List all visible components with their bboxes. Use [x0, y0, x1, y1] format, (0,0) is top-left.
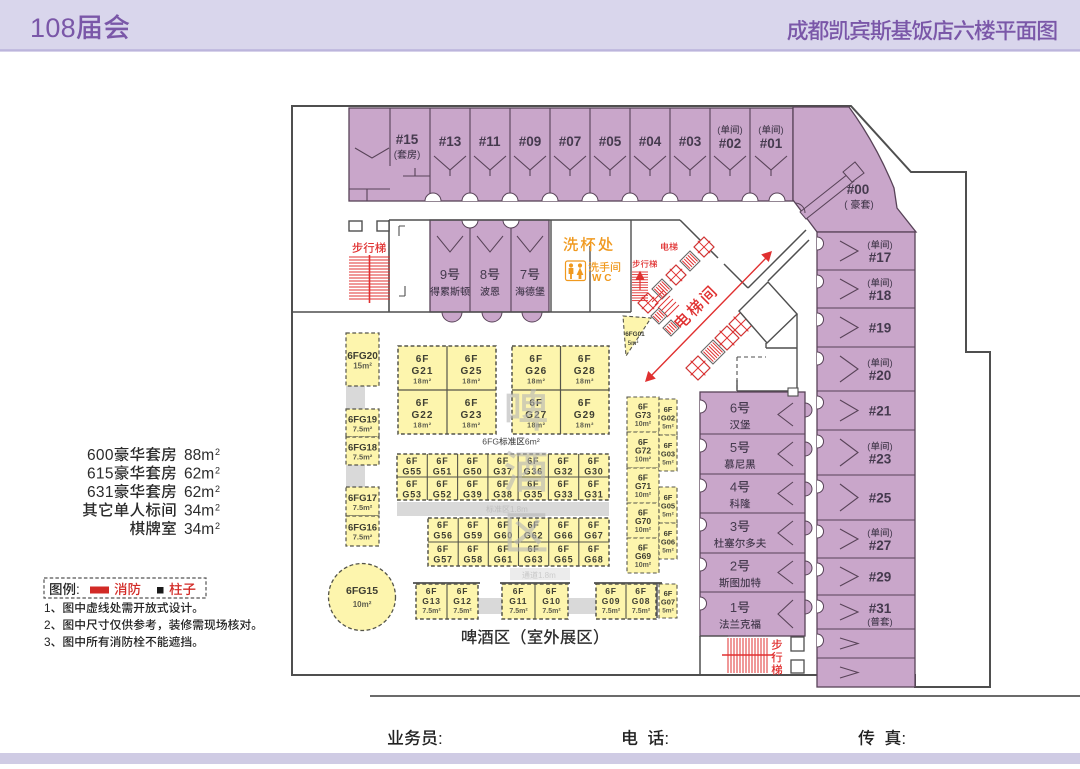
svg-text:6F: 6F — [436, 479, 448, 489]
svg-text:1.8m: 1.8m — [538, 571, 556, 580]
svg-text:4: 4 — [730, 480, 737, 495]
svg-text:2: 2 — [215, 484, 220, 494]
svg-text:G69: G69 — [635, 551, 651, 561]
svg-text:G31: G31 — [584, 490, 603, 500]
svg-text:6F: 6F — [406, 456, 418, 466]
svg-text:G32: G32 — [554, 467, 573, 477]
svg-text:G73: G73 — [635, 410, 651, 420]
svg-text:G02: G02 — [661, 414, 675, 423]
svg-text:#27: #27 — [869, 538, 892, 553]
svg-text:18m²: 18m² — [576, 379, 595, 386]
svg-text:2: 2 — [215, 466, 220, 476]
svg-text:5m²: 5m² — [662, 512, 674, 519]
svg-text:3: 3 — [730, 519, 737, 534]
svg-text:#23: #23 — [869, 452, 892, 467]
svg-text:#19: #19 — [869, 321, 892, 336]
svg-text:G13: G13 — [422, 596, 440, 606]
svg-text:#17: #17 — [869, 250, 892, 265]
svg-text:7.5m²: 7.5m² — [509, 608, 528, 615]
svg-text:2: 2 — [215, 447, 220, 457]
svg-text:10m²: 10m² — [353, 600, 372, 609]
svg-text:G22: G22 — [412, 410, 434, 421]
svg-text::: : — [438, 729, 443, 748]
svg-text:18m²: 18m² — [462, 423, 481, 430]
svg-text:6FG: 6FG — [482, 437, 499, 447]
svg-text:G51: G51 — [433, 467, 452, 477]
svg-text:G33: G33 — [554, 490, 573, 500]
svg-text:6F: 6F — [465, 398, 479, 409]
svg-text:6: 6 — [730, 401, 737, 416]
svg-text:G52: G52 — [433, 490, 452, 500]
svg-text:G57: G57 — [433, 555, 452, 565]
svg-text:6F: 6F — [465, 354, 479, 365]
svg-text:G25: G25 — [461, 366, 483, 377]
svg-text:G67: G67 — [584, 531, 603, 541]
svg-text:5: 5 — [730, 440, 737, 455]
svg-text:G29: G29 — [574, 410, 596, 421]
svg-text:7.5m²: 7.5m² — [422, 608, 441, 615]
svg-text:5m²: 5m² — [662, 460, 674, 467]
svg-text:62m: 62m — [184, 484, 214, 501]
svg-text:7.5m²: 7.5m² — [353, 532, 373, 541]
svg-text:88m: 88m — [184, 447, 214, 464]
svg-text:): ) — [781, 125, 784, 136]
svg-text:G61: G61 — [494, 555, 513, 565]
svg-text:6F: 6F — [436, 456, 448, 466]
svg-text:G65: G65 — [554, 555, 573, 565]
svg-text:6F: 6F — [467, 544, 479, 554]
svg-text:7: 7 — [520, 267, 527, 282]
svg-text:7.5m²: 7.5m² — [353, 452, 373, 461]
svg-text:6F: 6F — [457, 586, 469, 596]
svg-text:6F: 6F — [635, 586, 647, 596]
svg-text:G70: G70 — [635, 516, 651, 526]
svg-text:G66: G66 — [554, 531, 573, 541]
svg-text:2: 2 — [215, 503, 220, 513]
svg-text:6m²: 6m² — [525, 437, 540, 447]
svg-text:2: 2 — [730, 559, 737, 574]
svg-text:5m²: 5m² — [662, 424, 674, 431]
svg-text::: : — [76, 582, 80, 597]
svg-text:#02: #02 — [719, 136, 742, 151]
svg-text:6F: 6F — [406, 479, 418, 489]
svg-text:G11: G11 — [509, 596, 527, 606]
svg-text:18m²: 18m² — [527, 379, 546, 386]
svg-text:6F: 6F — [605, 586, 617, 596]
svg-text:600: 600 — [87, 447, 114, 464]
svg-text:G38: G38 — [493, 490, 512, 500]
svg-text:#00: #00 — [847, 182, 870, 197]
svg-text:6F: 6F — [588, 456, 600, 466]
svg-text:6F: 6F — [426, 586, 438, 596]
svg-text:G30: G30 — [584, 467, 603, 477]
svg-text:15m²: 15m² — [353, 361, 372, 370]
svg-text:6FG15: 6FG15 — [346, 585, 378, 597]
svg-text:G39: G39 — [463, 490, 482, 500]
svg-text:#25: #25 — [869, 491, 892, 506]
svg-text:6F: 6F — [467, 479, 479, 489]
svg-text:G28: G28 — [574, 366, 596, 377]
svg-text:108: 108 — [30, 13, 76, 43]
svg-text:G06: G06 — [661, 538, 675, 547]
svg-text:): ) — [417, 150, 420, 161]
svg-text:1: 1 — [730, 600, 737, 615]
svg-text:G72: G72 — [635, 446, 651, 456]
svg-text:18m²: 18m² — [413, 379, 432, 386]
svg-text:18m²: 18m² — [576, 423, 595, 430]
svg-text:5m²: 5m² — [628, 340, 639, 347]
svg-text::: : — [664, 729, 669, 748]
svg-text:6F: 6F — [546, 586, 558, 596]
svg-text:G53: G53 — [402, 490, 421, 500]
svg-text:G12: G12 — [453, 596, 471, 606]
svg-text:631: 631 — [87, 484, 114, 501]
svg-text:9: 9 — [440, 267, 447, 282]
svg-text:34m: 34m — [184, 503, 214, 520]
svg-text:6F: 6F — [416, 354, 430, 365]
svg-text:G35: G35 — [524, 490, 543, 500]
svg-text:G71: G71 — [635, 481, 651, 491]
svg-text:6F: 6F — [437, 520, 449, 530]
svg-text:G21: G21 — [412, 366, 434, 377]
svg-text:#04: #04 — [639, 134, 662, 149]
svg-text:7.5m²: 7.5m² — [353, 424, 373, 433]
svg-text:#03: #03 — [679, 134, 702, 149]
svg-text:6F: 6F — [529, 354, 543, 365]
svg-text:10m²: 10m² — [635, 421, 652, 428]
svg-text:6F: 6F — [578, 354, 592, 365]
svg-text:G07: G07 — [661, 598, 675, 607]
svg-text:6F: 6F — [588, 520, 600, 530]
svg-text:7.5m²: 7.5m² — [632, 608, 651, 615]
svg-text:#31: #31 — [869, 601, 892, 616]
svg-text:5m²: 5m² — [662, 548, 674, 555]
svg-text:G26: G26 — [525, 366, 547, 377]
svg-text:6F: 6F — [513, 586, 525, 596]
svg-text:G55: G55 — [402, 467, 421, 477]
svg-text:): ) — [890, 617, 893, 628]
svg-text:#11: #11 — [479, 134, 501, 149]
svg-text:G23: G23 — [461, 410, 483, 421]
svg-text:#20: #20 — [869, 368, 892, 383]
svg-text:6F: 6F — [558, 544, 570, 554]
svg-text:6F: 6F — [437, 544, 449, 554]
svg-text:G68: G68 — [584, 555, 603, 565]
svg-text:G08: G08 — [632, 596, 650, 606]
svg-text:G05: G05 — [661, 502, 675, 511]
svg-text:1.8m: 1.8m — [510, 505, 528, 514]
svg-text:8: 8 — [480, 267, 487, 282]
svg-text:2: 2 — [44, 618, 51, 632]
svg-text:6F: 6F — [416, 398, 430, 409]
svg-text:10m²: 10m² — [635, 527, 652, 534]
svg-text:6F: 6F — [578, 398, 592, 409]
svg-text:10m²: 10m² — [635, 562, 652, 569]
svg-text:6F: 6F — [467, 520, 479, 530]
svg-text:10m²: 10m² — [635, 457, 652, 464]
svg-text:W C: W C — [592, 273, 611, 284]
svg-text:18m²: 18m² — [462, 379, 481, 386]
svg-text:#09: #09 — [519, 134, 542, 149]
svg-text:6F: 6F — [558, 479, 570, 489]
svg-text:#07: #07 — [559, 134, 582, 149]
svg-text:10m²: 10m² — [635, 492, 652, 499]
svg-text:615: 615 — [87, 466, 114, 483]
svg-text:G03: G03 — [661, 450, 675, 459]
svg-text:#18: #18 — [869, 288, 892, 303]
svg-text:G56: G56 — [433, 531, 452, 541]
svg-text:): ) — [740, 125, 743, 136]
svg-text:7.5m²: 7.5m² — [602, 608, 621, 615]
svg-text:6FG20: 6FG20 — [347, 351, 378, 362]
svg-text:62m: 62m — [184, 466, 214, 483]
svg-text:#13: #13 — [439, 134, 462, 149]
svg-text:G50: G50 — [463, 467, 482, 477]
svg-text:G10: G10 — [542, 596, 560, 606]
svg-text:7.5m²: 7.5m² — [542, 608, 561, 615]
svg-text:G59: G59 — [464, 531, 483, 541]
svg-text:G58: G58 — [464, 555, 483, 565]
svg-text:7.5m²: 7.5m² — [453, 608, 472, 615]
svg-text:1: 1 — [44, 601, 51, 615]
svg-text:G63: G63 — [524, 555, 543, 565]
svg-text:6F: 6F — [558, 520, 570, 530]
svg-text:G09: G09 — [602, 596, 620, 606]
svg-text:#21: #21 — [869, 404, 892, 419]
svg-text:7.5m²: 7.5m² — [353, 503, 373, 512]
svg-text:#29: #29 — [869, 570, 892, 585]
svg-text:2: 2 — [215, 521, 220, 531]
svg-text:#05: #05 — [599, 134, 622, 149]
svg-text:6FG01: 6FG01 — [625, 331, 645, 338]
svg-text:): ) — [870, 200, 873, 211]
svg-text:34m: 34m — [184, 521, 214, 538]
svg-text::: : — [901, 729, 906, 748]
svg-text:6F: 6F — [467, 456, 479, 466]
svg-text:#01: #01 — [760, 136, 783, 151]
svg-text:#15: #15 — [396, 132, 419, 147]
svg-text:3: 3 — [44, 635, 51, 649]
svg-text:6F: 6F — [558, 456, 570, 466]
svg-text:6F: 6F — [588, 479, 600, 489]
svg-text:6F: 6F — [588, 544, 600, 554]
svg-text:18m²: 18m² — [413, 423, 432, 430]
svg-text:5m²: 5m² — [662, 608, 674, 615]
